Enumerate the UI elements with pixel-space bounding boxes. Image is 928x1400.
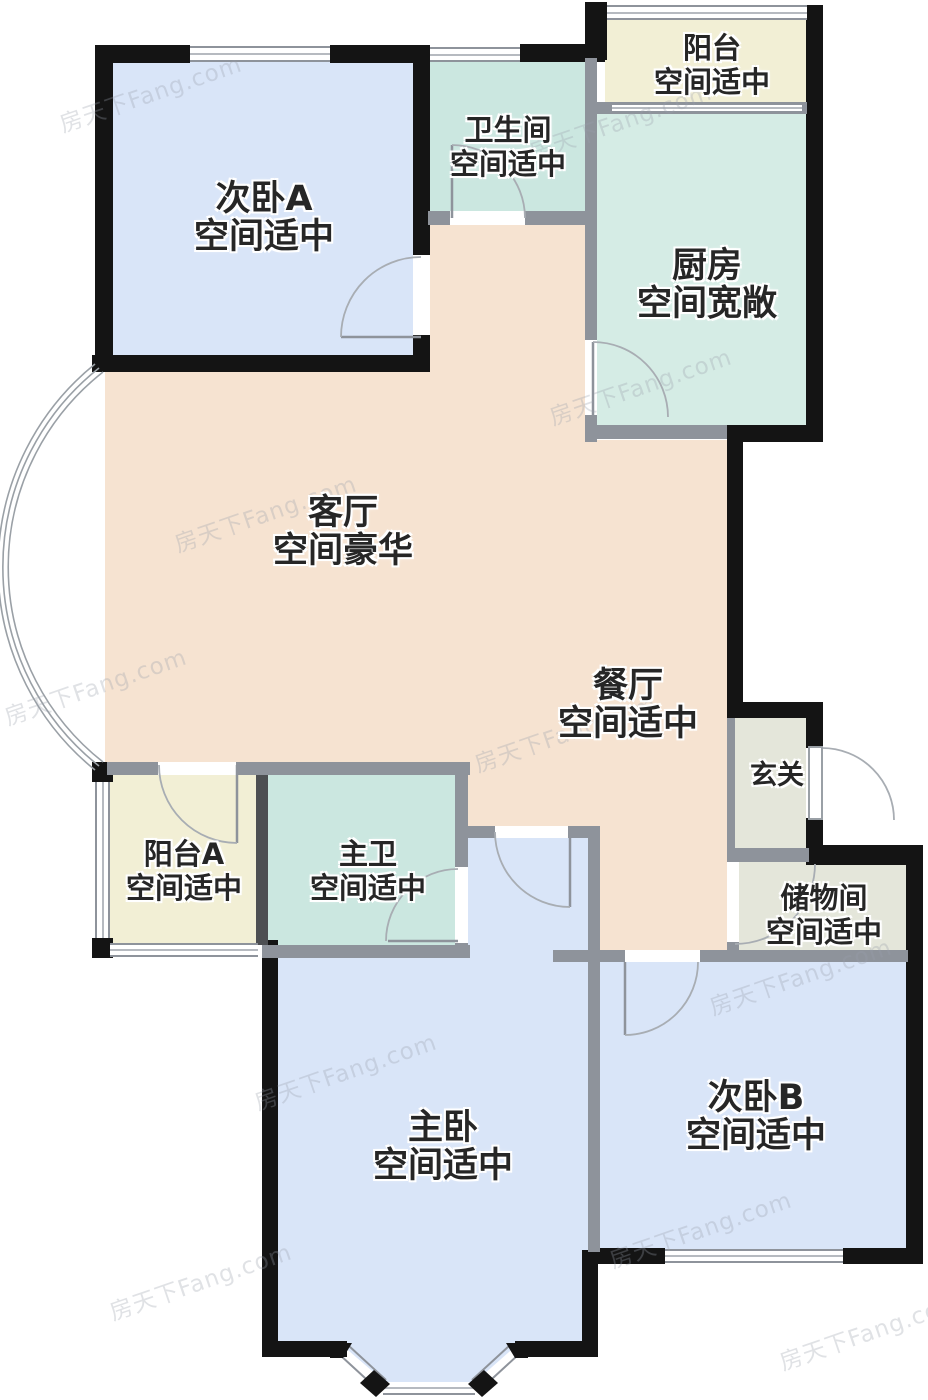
room-label-balcony-a: 阳台A 空间适中 xyxy=(126,837,242,905)
door-arc-balcony-a xyxy=(159,765,237,843)
floor-plan: 房天下Fang.com 房天下Fang.com 房天下Fang.com 房天下F… xyxy=(0,0,928,1400)
room-name: 储物间 xyxy=(766,881,882,915)
room-note: 空间适中 xyxy=(766,915,882,949)
room-name: 阳台A xyxy=(126,837,242,871)
room-name: 客厅 xyxy=(273,494,413,532)
room-label-storage: 储物间 空间适中 xyxy=(766,881,882,949)
room-note: 空间适中 xyxy=(310,871,426,905)
room-name: 餐厅 xyxy=(558,667,698,705)
room-note: 空间豪华 xyxy=(273,532,413,570)
room-name: 阳台 xyxy=(654,31,770,65)
room-label-kitchen: 厨房 空间宽敞 xyxy=(637,247,777,323)
room-label-balcony: 阳台 空间适中 xyxy=(654,31,770,99)
door-arc-entry xyxy=(822,748,894,820)
room-name: 次卧A xyxy=(194,180,334,218)
door-arc-bedroom-b xyxy=(625,962,698,1035)
room-name: 主卧 xyxy=(373,1109,513,1147)
room-label-living: 客厅 空间豪华 xyxy=(273,494,413,570)
room-name: 主卫 xyxy=(310,837,426,871)
room-label-dining: 餐厅 空间适中 xyxy=(558,667,698,743)
room-note: 空间适中 xyxy=(373,1147,513,1185)
room-label-bedroom-a: 次卧A 空间适中 xyxy=(194,180,334,256)
room-label-master-bath: 主卫 空间适中 xyxy=(310,837,426,905)
room-label-master-bedroom: 主卧 空间适中 xyxy=(373,1109,513,1185)
room-label-bathroom: 卫生间 空间适中 xyxy=(450,113,566,181)
room-note: 空间适中 xyxy=(450,147,566,181)
room-name: 玄关 xyxy=(750,761,804,791)
room-note: 空间宽敞 xyxy=(637,285,777,323)
room-note: 空间适中 xyxy=(686,1117,826,1155)
plan-overlay xyxy=(0,0,928,1400)
room-name: 次卧B xyxy=(686,1079,826,1117)
door-arc-bedroom-a xyxy=(341,257,421,337)
door-arc-master-bedroom xyxy=(495,832,570,907)
room-note: 空间适中 xyxy=(558,705,698,743)
room-note: 空间适中 xyxy=(654,65,770,99)
room-name: 厨房 xyxy=(637,247,777,285)
room-label-bedroom-b: 次卧B 空间适中 xyxy=(686,1079,826,1155)
room-note: 空间适中 xyxy=(194,218,334,256)
room-note: 空间适中 xyxy=(126,871,242,905)
entry-door-leaf xyxy=(808,746,823,820)
room-label-entry: 玄关 xyxy=(750,761,804,791)
room-name: 卫生间 xyxy=(450,113,566,147)
door-leaves xyxy=(237,145,625,1035)
